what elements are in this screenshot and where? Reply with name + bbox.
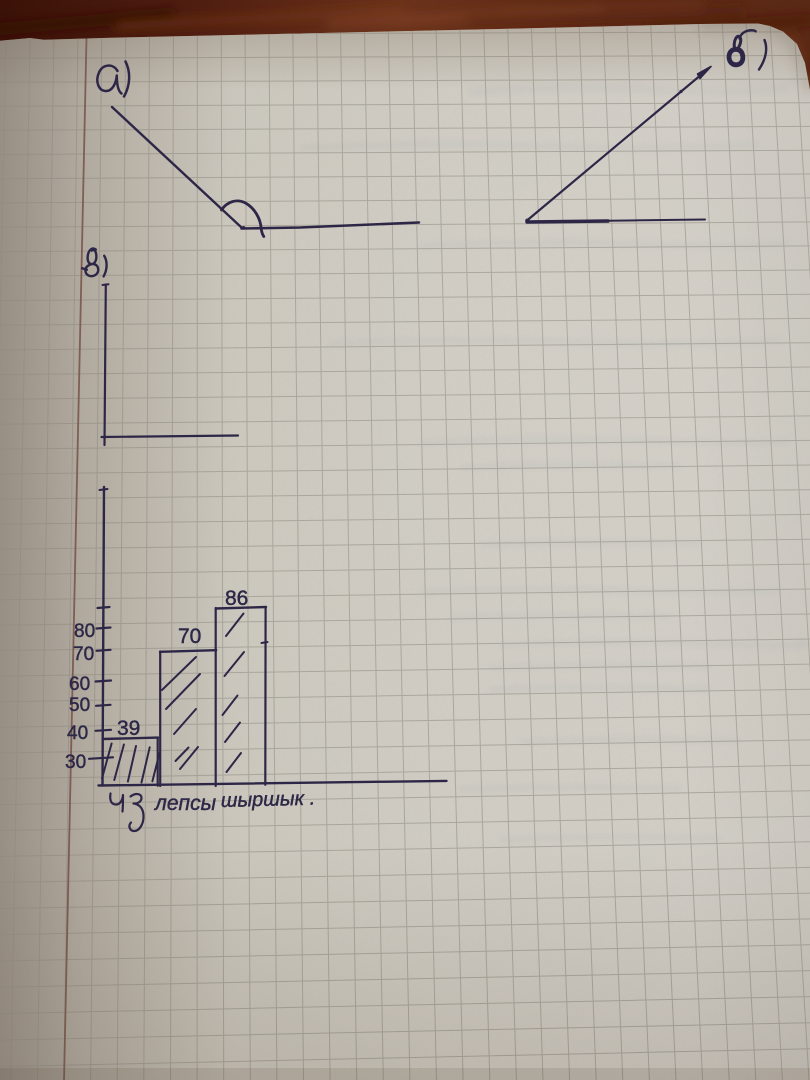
svg-text:лепсы: лепсы [154, 792, 217, 815]
svg-text:60: 60 [69, 674, 90, 695]
svg-text:шыршык .: шыршык . [221, 788, 316, 812]
svg-text:30: 30 [65, 752, 86, 773]
svg-text:50: 50 [69, 695, 90, 716]
svg-text:86: 86 [225, 587, 248, 610]
svg-text:39: 39 [117, 717, 140, 740]
svg-text:70: 70 [73, 644, 94, 665]
svg-text:70: 70 [178, 625, 201, 648]
svg-text:80: 80 [74, 621, 95, 642]
svg-text:40: 40 [67, 723, 88, 744]
